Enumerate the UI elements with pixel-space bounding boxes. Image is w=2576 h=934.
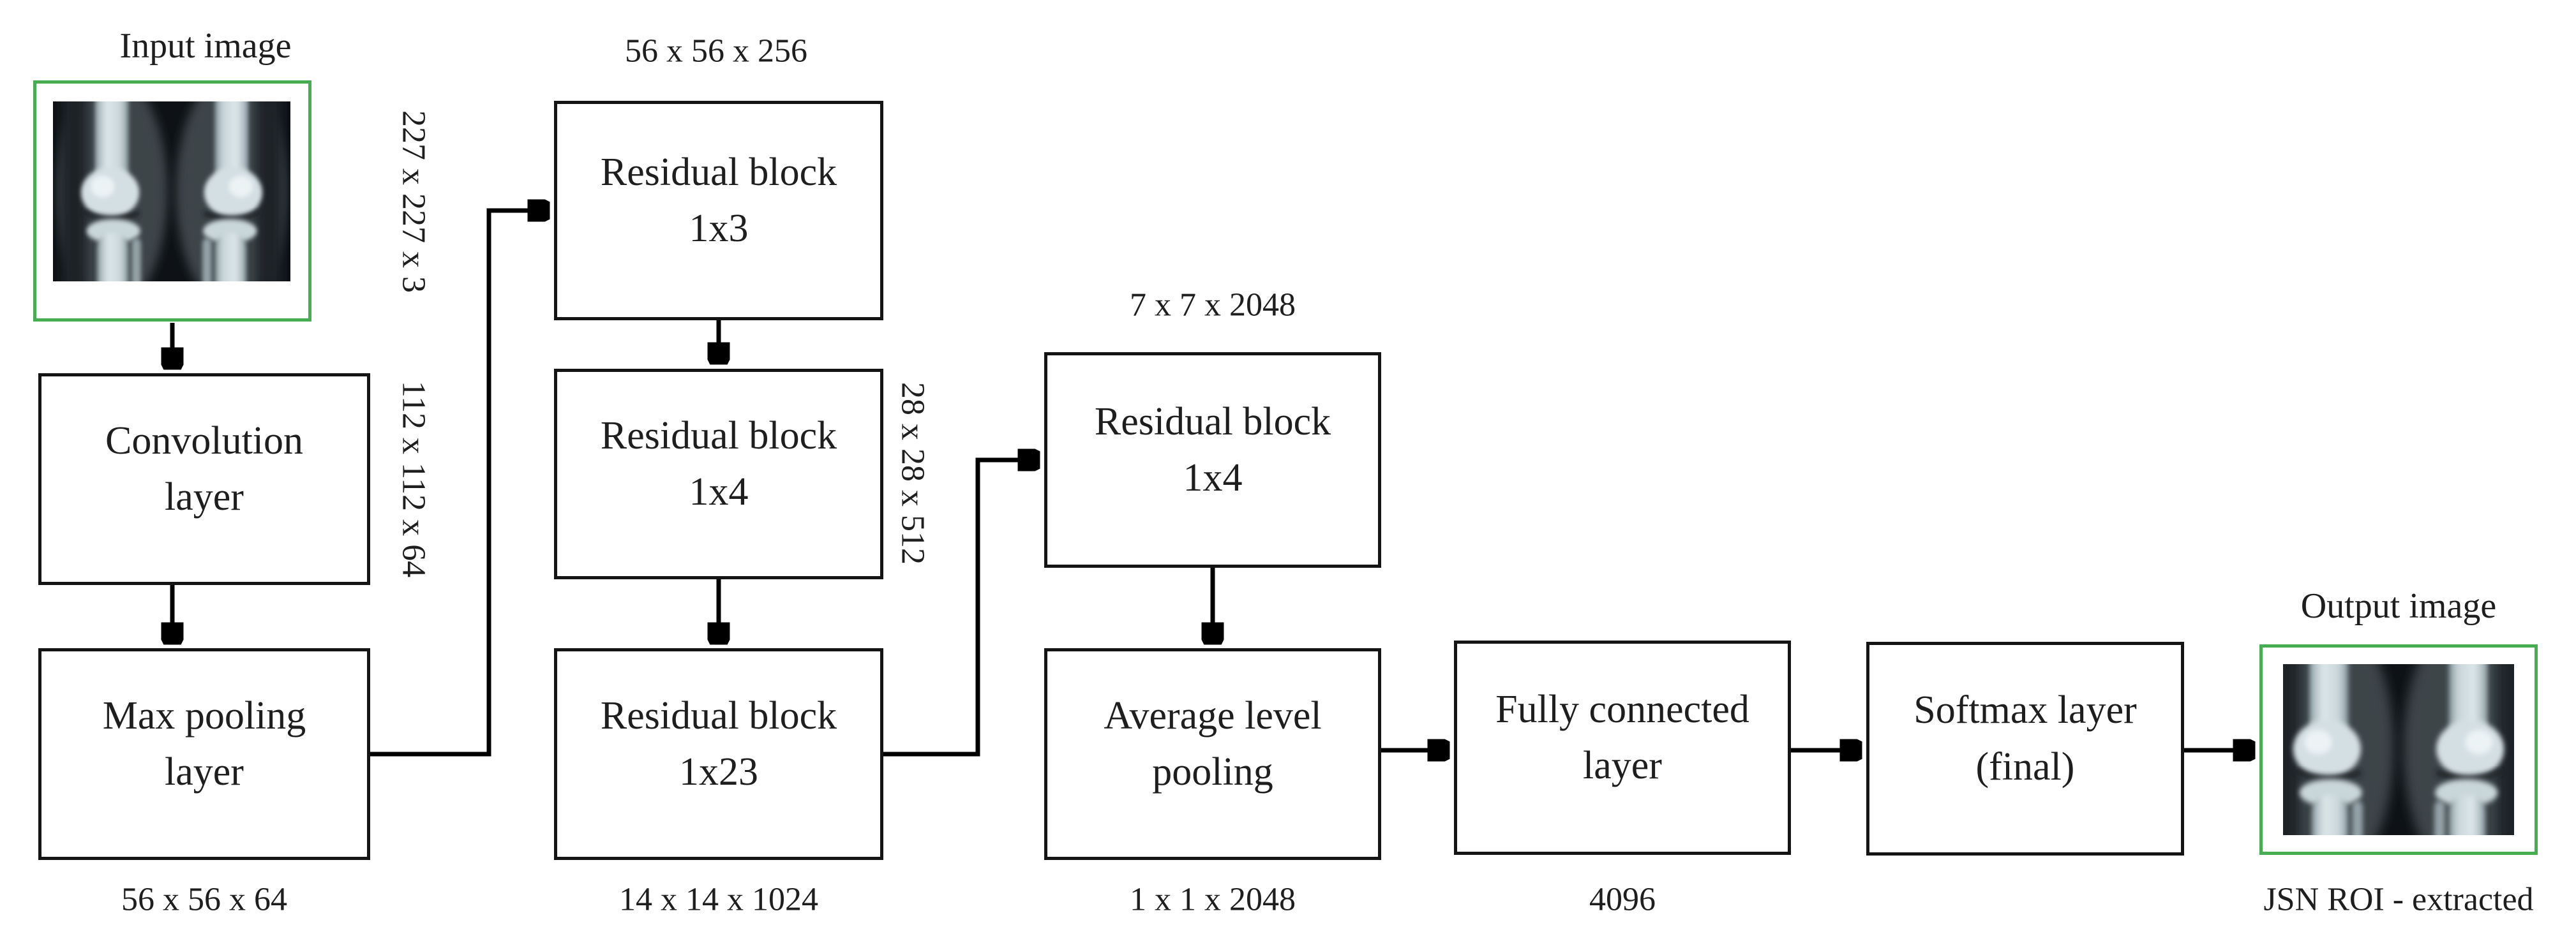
- knee-xray-graphic: [53, 101, 290, 281]
- fully-connected-layer-box: Fully connected layer: [1454, 641, 1791, 855]
- dim-label-conv: 112 x 112 x 64: [395, 381, 433, 577]
- softmax-layer-box: Softmax layer (final): [1866, 642, 2184, 856]
- input-image-title: Input image: [119, 26, 291, 66]
- output-caption: JSN ROI - extracted: [2263, 881, 2533, 919]
- output-image-frame: [2259, 644, 2538, 855]
- max-pooling-layer-label: Max pooling layer: [103, 688, 306, 800]
- architecture-diagram: Input image 227 x 227 x 3 Convolution la…: [0, 0, 2576, 934]
- output-image-title: Output image: [2301, 586, 2496, 626]
- residual-block-1x4-box: Residual block 1x4: [554, 369, 883, 579]
- residual-block-1x4-final-label: Residual block 1x4: [1095, 394, 1331, 506]
- dim-label-maxpool: 56 x 56 x 64: [121, 881, 287, 919]
- output-xray-image: [2283, 664, 2514, 835]
- average-level-pooling-box: Average level pooling: [1044, 648, 1381, 860]
- dim-label-avgpool: 1 x 1 x 2048: [1130, 881, 1296, 919]
- dim-label-input: 227 x 227 x 3: [395, 110, 433, 293]
- dim-label-fc: 4096: [1589, 881, 1656, 919]
- input-image-frame: [33, 80, 311, 322]
- fully-connected-layer-label: Fully connected layer: [1495, 681, 1749, 794]
- residual-block-1x3-box: Residual block 1x3: [554, 101, 883, 320]
- dim-label-res3: 14 x 14 x 1024: [619, 881, 818, 919]
- knee-xray-graphic-zoomed: [2283, 664, 2514, 835]
- average-level-pooling-label: Average level pooling: [1104, 688, 1321, 800]
- dim-label-res4: 7 x 7 x 2048: [1130, 286, 1296, 324]
- max-pooling-layer-box: Max pooling layer: [38, 648, 370, 860]
- dim-label-res1: 56 x 56 x 256: [625, 33, 807, 70]
- residual-block-1x23-box: Residual block 1x23: [554, 648, 883, 860]
- residual-block-1x23-label: Residual block 1x23: [601, 688, 837, 800]
- convolution-layer-box: Convolution layer: [38, 373, 370, 585]
- convolution-layer-label: Convolution layer: [105, 413, 303, 525]
- softmax-layer-label: Softmax layer (final): [1913, 682, 2137, 794]
- residual-block-1x4-label: Residual block 1x4: [601, 408, 837, 520]
- input-xray-image: [53, 101, 290, 281]
- dim-label-res2: 28 x 28 x 512: [894, 382, 932, 565]
- residual-block-1x4-final-box: Residual block 1x4: [1044, 352, 1381, 568]
- residual-block-1x3-label: Residual block 1x3: [601, 144, 837, 256]
